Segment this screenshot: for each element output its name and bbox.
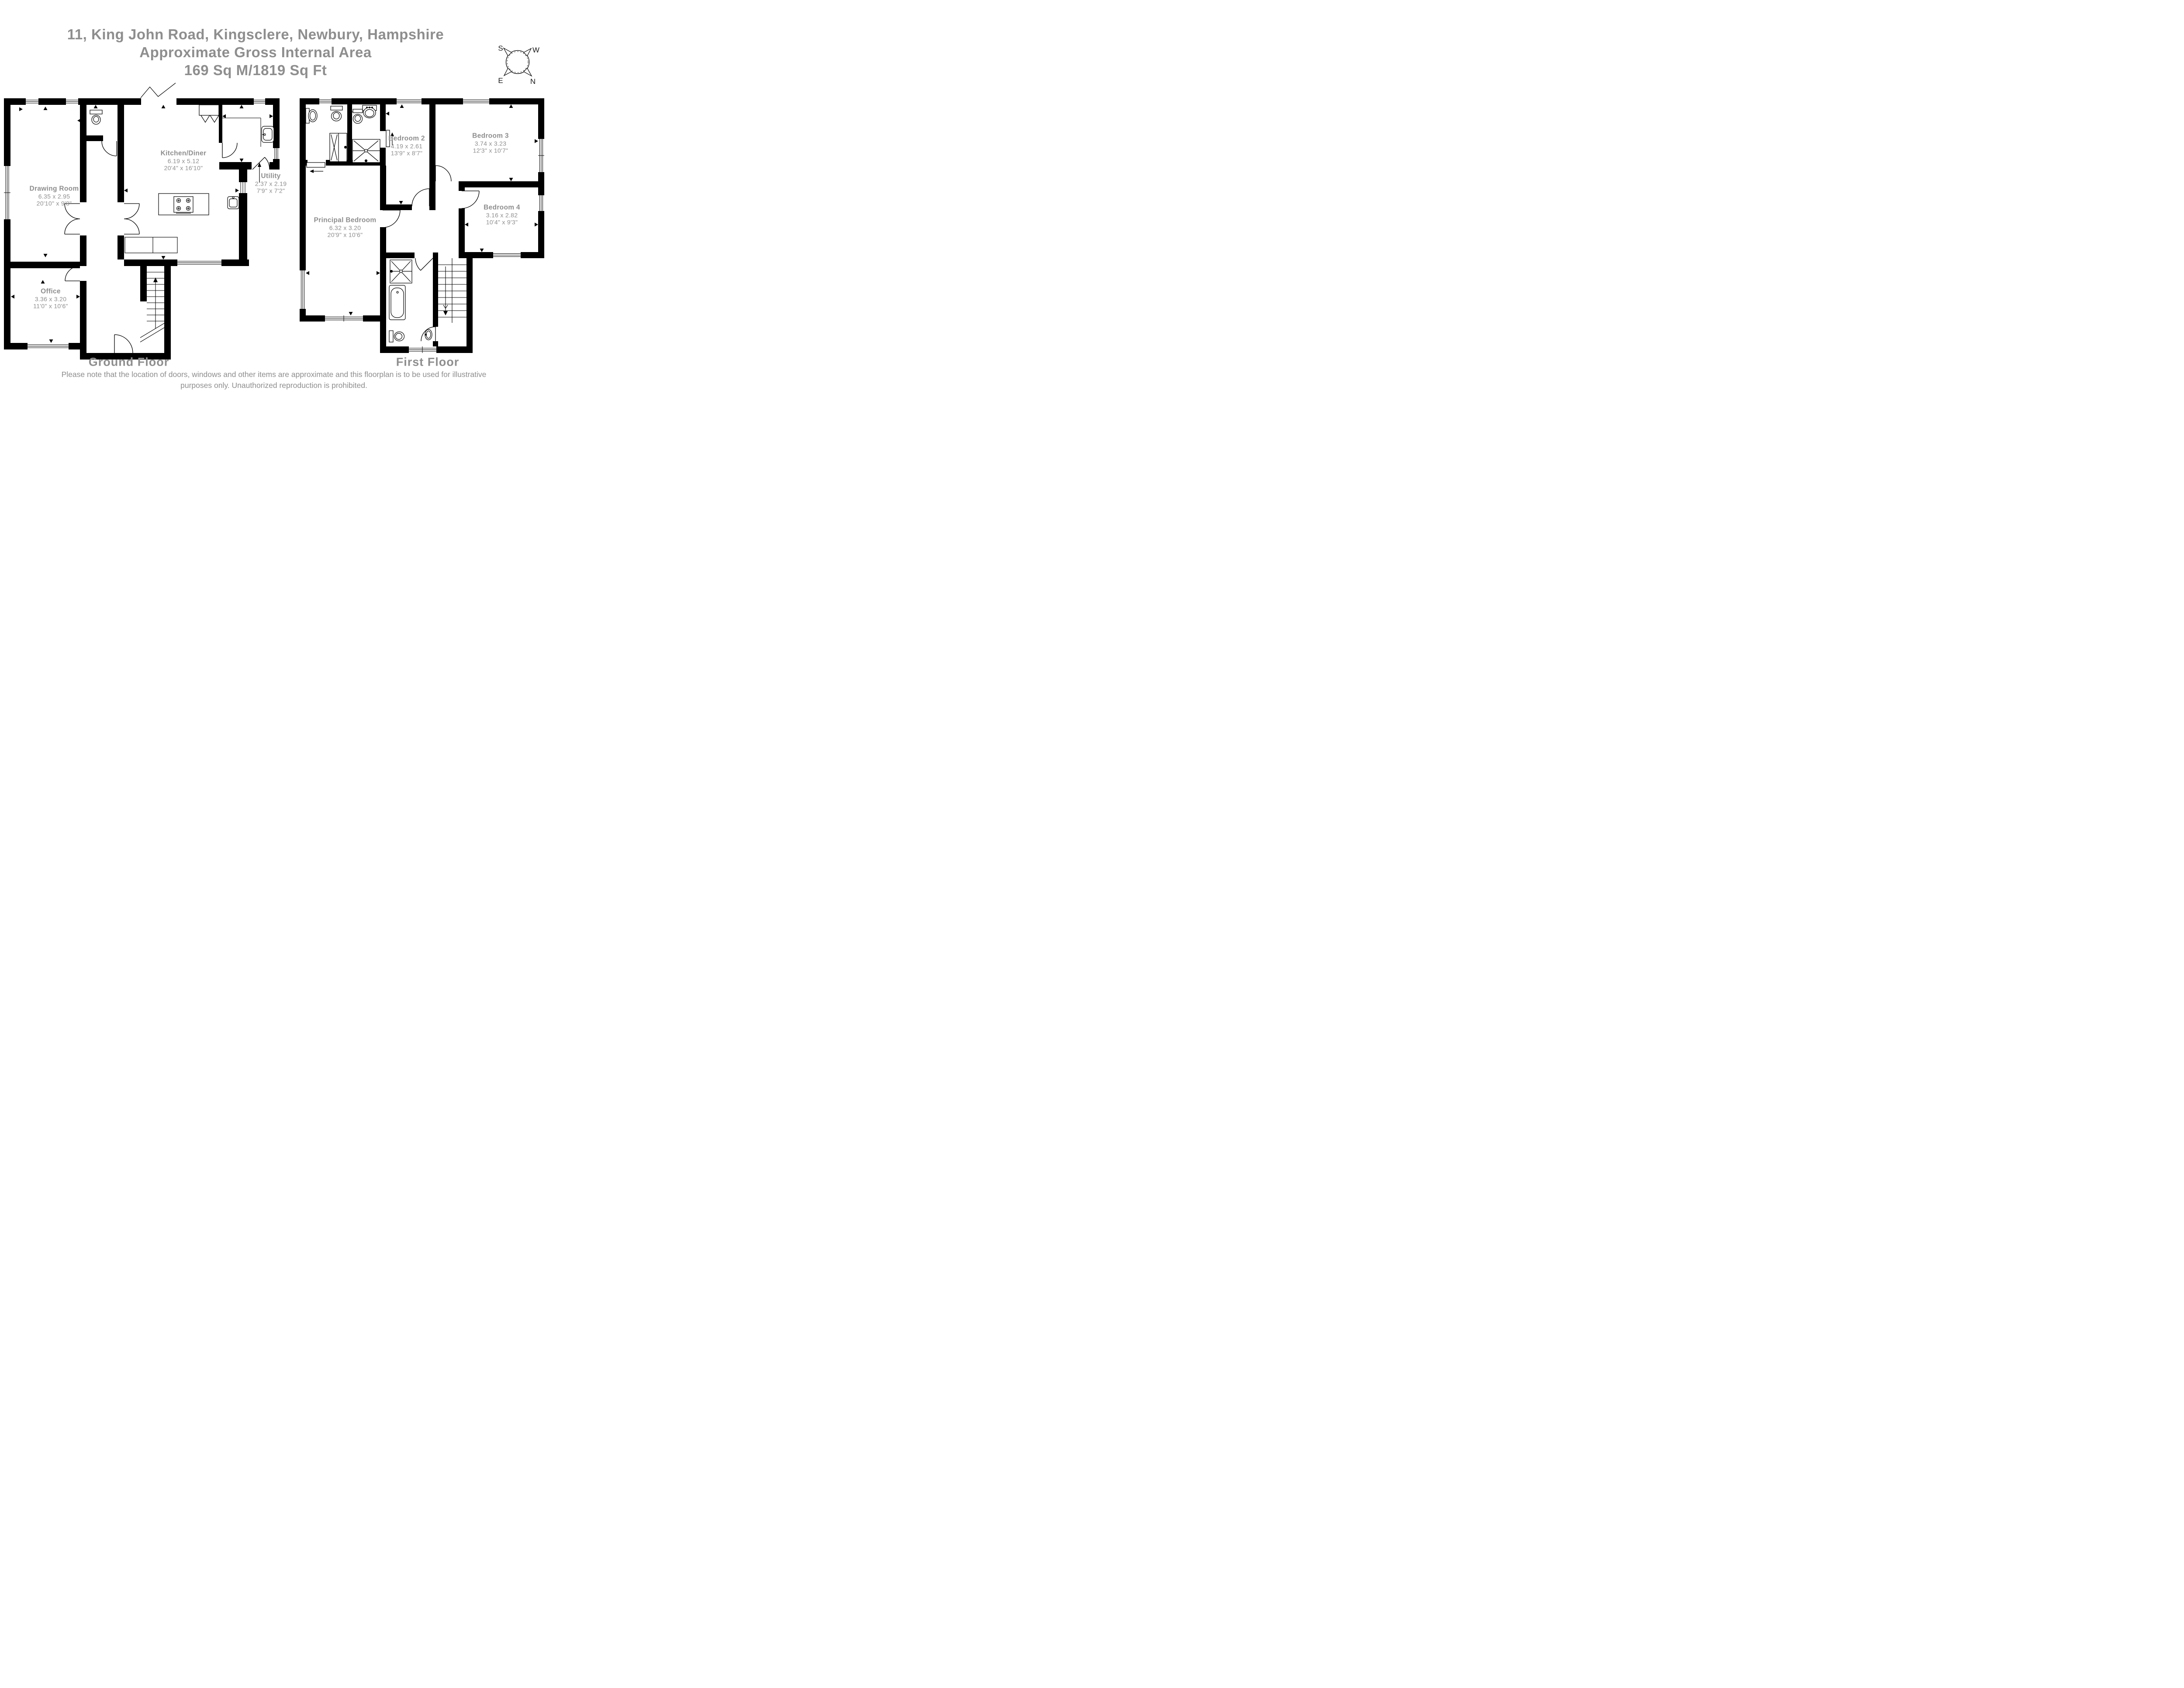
wc-door — [102, 141, 117, 156]
compass-label-west: W — [532, 46, 539, 54]
room-label-drawing-room: Drawing Room 6.35 x 2.95 20'10" x 9'8" — [30, 185, 79, 207]
room-imperial: 7'9" x 7'2" — [255, 187, 287, 194]
showerroom-toilet-icon — [352, 109, 363, 124]
room-imperial: 10'4" x 9'3" — [484, 218, 520, 226]
window — [4, 166, 10, 219]
window — [254, 98, 265, 105]
ensuite-shower-icon — [330, 133, 347, 162]
front-door — [114, 335, 133, 353]
window — [493, 252, 521, 258]
room-metric: 3.16 x 2.82 — [484, 211, 520, 219]
principal-bedroom-door — [383, 210, 400, 228]
kitchen-cupboard-icon — [199, 105, 219, 122]
window — [239, 182, 247, 193]
page-title: 11, King John Road, Kingsclere, Newbury,… — [67, 25, 444, 79]
double-door-drawing-room — [65, 204, 80, 234]
room-imperial: 11'0" x 10'6" — [33, 302, 68, 310]
room-imperial: 20'9" x 10'6" — [314, 231, 377, 239]
room-metric: 3.74 x 3.23 — [472, 140, 509, 147]
window — [409, 346, 436, 353]
double-door-kitchen — [124, 204, 139, 234]
kitchen-counter — [125, 237, 177, 253]
bedroom3-door — [435, 166, 451, 181]
room-label-bedroom-2: Bedroom 2 4.19 x 2.61 13'9" x 8'7" — [388, 135, 425, 157]
bathroom-shower-icon — [390, 260, 412, 283]
wc-toilet-icon — [90, 110, 102, 125]
room-metric: 6.35 x 2.95 — [30, 193, 79, 200]
room-metric: 3.36 x 3.20 — [33, 295, 68, 303]
disclaimer-line-2: purposes only. Unauthorized reproduction… — [62, 380, 487, 391]
bedroom2-door — [412, 189, 429, 206]
disclaimer-line-1: Please note that the location of doors, … — [62, 369, 487, 380]
room-name: Kitchen/Diner — [161, 150, 207, 157]
compass-label-east: E — [498, 76, 503, 85]
room-name: Principal Bedroom — [314, 217, 377, 224]
compass-rose: S W E N — [498, 44, 539, 86]
room-label-bedroom-3: Bedroom 3 3.74 x 3.23 12'3" x 10'7" — [472, 132, 509, 154]
title-area: 169 Sq M/1819 Sq Ft — [67, 61, 444, 79]
windows — [4, 98, 280, 349]
bathroom-basin-icon — [425, 329, 432, 340]
room-name: Bedroom 2 — [388, 135, 425, 142]
window — [28, 343, 69, 349]
stairs-down-arrow — [443, 311, 448, 315]
room-label-bedroom-4: Bedroom 4 3.16 x 2.82 10'4" x 9'3" — [484, 204, 520, 226]
office-door — [65, 266, 80, 281]
window — [66, 98, 78, 105]
disclaimer: Please note that the location of doors, … — [62, 369, 487, 391]
window — [325, 315, 363, 322]
ground-floor-plan — [4, 83, 280, 360]
title-subtitle: Approximate Gross Internal Area — [67, 43, 444, 61]
compass-label-north: N — [530, 77, 536, 86]
kitchen-sink-icon — [228, 197, 239, 209]
compass-needle-w — [524, 48, 531, 56]
room-label-kitchen-diner: Kitchen/Diner 6.19 x 5.12 20'4" x 16'10" — [161, 150, 207, 172]
back-door — [252, 157, 270, 169]
walls — [4, 98, 280, 360]
showerroom-basin-icon — [363, 105, 377, 118]
room-name: Bedroom 4 — [484, 204, 520, 211]
window — [538, 195, 544, 211]
ensuite-basin-icon — [306, 108, 317, 123]
room-imperial: 12'3" x 10'7" — [472, 147, 509, 154]
room-label-utility: Utility 2.37 x 2.19 7'9" x 7'2" — [255, 173, 287, 194]
bedroom4-door — [462, 191, 479, 208]
bathroom-toilet-icon — [389, 331, 404, 342]
window — [463, 98, 489, 104]
window — [538, 139, 544, 172]
sliding-door-ensuite — [307, 163, 325, 173]
window — [177, 259, 221, 266]
utility-counter — [222, 118, 261, 147]
compass-label-south: S — [498, 44, 503, 52]
compass-needle-e — [504, 68, 511, 76]
window — [26, 98, 38, 105]
window — [319, 98, 332, 104]
room-imperial: 20'4" x 16'10" — [161, 164, 207, 172]
room-metric: 6.32 x 3.20 — [314, 224, 377, 232]
room-name: Drawing Room — [30, 185, 79, 193]
room-imperial: 20'10" x 9'8" — [30, 200, 79, 207]
utility-sink-icon — [262, 126, 274, 142]
room-name: Utility — [255, 173, 287, 180]
ground-floor-label: Ground Floor — [89, 356, 169, 369]
ensuite-toilet-icon — [331, 106, 342, 121]
room-metric: 6.19 x 5.12 — [161, 157, 207, 165]
utility-inner-door — [222, 143, 237, 158]
room-label-principal-bedroom: Principal Bedroom 6.32 x 3.20 20'9" x 10… — [314, 217, 377, 239]
kitchen-island-hob-icon — [159, 194, 209, 215]
stairs-first — [438, 258, 467, 323]
window — [300, 270, 306, 309]
room-metric: 2.37 x 2.19 — [255, 180, 287, 187]
compass-needle-n — [524, 68, 532, 76]
bathroom-door — [415, 258, 433, 270]
porch-break-line — [141, 83, 176, 98]
floorplan-page: S W E N 11, King John Road, Kingsclere, … — [0, 0, 546, 422]
bathtub-icon — [389, 285, 405, 320]
room-name: Office — [33, 288, 68, 295]
room-name: Bedroom 3 — [472, 132, 509, 140]
window — [397, 98, 422, 104]
first-floor-label: First Floor — [396, 356, 460, 369]
room-metric: 4.19 x 2.61 — [388, 142, 425, 150]
window — [273, 148, 280, 159]
title-address: 11, King John Road, Kingsclere, Newbury,… — [67, 25, 444, 43]
showerroom-shower-icon — [352, 139, 380, 163]
room-label-office: Office 3.36 x 3.20 11'0" x 10'6" — [33, 288, 68, 310]
room-imperial: 13'9" x 8'7" — [388, 149, 425, 157]
